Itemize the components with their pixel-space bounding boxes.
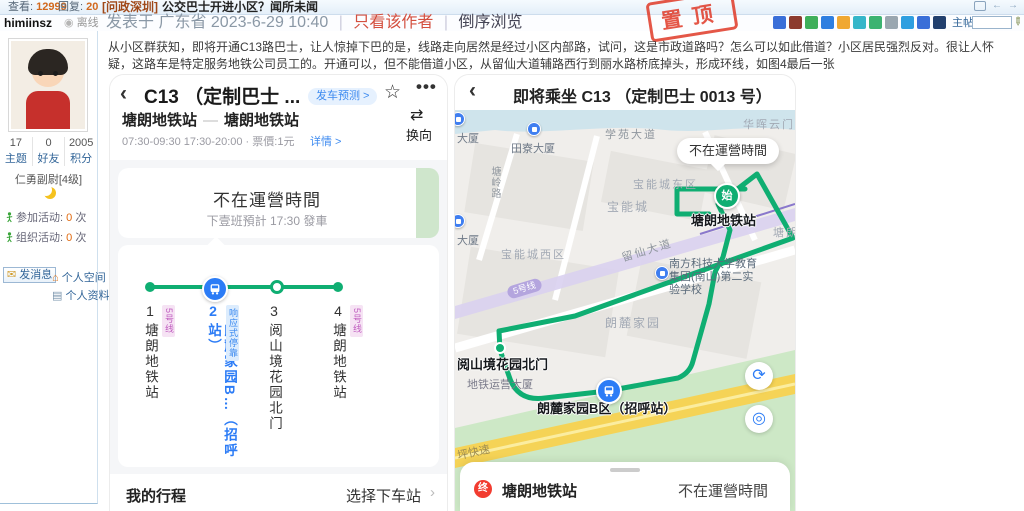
prev-thread-icon[interactable]: ← [992, 1, 1002, 11]
share-icon-friend[interactable] [917, 16, 930, 29]
end-marker: 终 [474, 480, 492, 498]
bus-glyph [208, 282, 222, 296]
stop-marker-terminal-1[interactable] [145, 282, 155, 292]
map-stop-label: 阅山境花园北门 [457, 354, 548, 373]
favorite-star-icon[interactable]: ☆ [384, 81, 401, 104]
post-body-text: 从小区群获知，即将开通C13路巴士，让人惊掉下巴的是，线路走向居然是经过小区内部… [108, 39, 1013, 73]
author-username[interactable]: himiinsz [4, 15, 52, 31]
activity-organize-label: 组织活动: [16, 232, 63, 244]
map-label-road: 学苑大道 [605, 126, 657, 142]
status-subtitle: 下壹班預計 17:30 發車 [118, 212, 416, 229]
runner-icon [5, 232, 14, 243]
swap-direction-icon[interactable]: ⇄ [410, 105, 423, 125]
pinned-stamp: 置顶 [645, 0, 738, 43]
refresh-button[interactable]: ⟳ [745, 362, 773, 390]
destination-station: 塘朗地铁站 [224, 112, 299, 129]
map-label-area: 宝能城东区 [633, 176, 698, 192]
metro-line5-badge: 5号线 [162, 305, 175, 337]
share-icon-renren[interactable] [933, 16, 946, 29]
stops-panel: 1 2 3 4 塘朗地铁站 朗麓家园B…（招呼站） 阅山境花园北门 塘朗地铁站 … [118, 245, 439, 467]
route-map[interactable]: 华晖云门 学苑大道 田寮大厦 塘岭路 宝能城东区 宝能城 宝能城西区 留仙大道 … [455, 110, 795, 511]
map-label: 华晖云门 [743, 116, 795, 132]
status-title: 不在運營時間 [118, 186, 416, 211]
start-marker[interactable]: 始 [714, 183, 740, 209]
runner-icon [5, 212, 14, 223]
avatar-eye [38, 71, 43, 76]
service-times: 07:30-09:30 17:30-20:00 · 票價:1元 [122, 133, 294, 149]
route-title: C13 （定制巴士 ... [144, 82, 300, 109]
metro-line5-badge: 5号线 [350, 305, 363, 337]
share-icon-douban[interactable] [869, 16, 882, 29]
chevron-right-icon: › [430, 484, 435, 501]
share-icon-qq[interactable] [821, 16, 834, 29]
departure-forecast-badge[interactable]: 发车预测 > [308, 88, 377, 105]
avatar-image [11, 41, 85, 129]
map-app-title: 即将乘坐 C13 （定制巴士 0013 号） [513, 83, 772, 107]
avatar[interactable] [8, 38, 88, 132]
operating-status-card: 不在運營時間 下壹班預計 17:30 發車 [118, 168, 416, 238]
more-options-icon[interactable]: ••• [416, 77, 437, 97]
stop-name[interactable]: 塘朗地铁站 [330, 323, 346, 401]
detail-link[interactable]: 详情 > [310, 133, 341, 149]
screenshot-bus-map-app: ‹ 即将乘坐 C13 （定制巴士 0013 号） [455, 75, 795, 511]
activity-organize: 组织活动: 0 次 [5, 229, 86, 245]
origin-station: 塘朗地铁站 [122, 112, 197, 129]
map-label-poi: 地铁运营大厦 [467, 376, 533, 392]
next-thread-icon[interactable]: → [1008, 1, 1018, 11]
moon-status-icon [44, 187, 56, 199]
meta-divider: | [339, 14, 343, 31]
views-caption: 查看: [8, 1, 33, 13]
stat-threads[interactable]: 17主题 [0, 137, 33, 166]
share-icon-tencent-weibo[interactable] [773, 16, 786, 29]
thread-title-text: 公交巴士开进小区？闻所未闻 [162, 0, 318, 14]
sheet-station-name: 塘朗地铁站 [502, 480, 577, 501]
author-rank: 仁勇副尉[4级] [0, 171, 97, 187]
share-icons-row [773, 16, 946, 29]
stop-number: 1 [140, 303, 160, 319]
map-label-road: 塘岭路 [487, 166, 502, 199]
bus-position-icon[interactable] [202, 276, 228, 302]
locate-button[interactable]: ◎ [745, 405, 773, 433]
meta-divider: | [444, 14, 448, 31]
thread-category-tag[interactable]: [问政深圳] [102, 0, 158, 14]
posted-time: 发表于 广东省 2023-6-29 10:40 [106, 14, 328, 31]
route-endpoints: 塘朗地铁站—塘朗地铁站 [122, 109, 299, 130]
drag-handle[interactable] [610, 468, 640, 472]
profile-card-icon: ▤ [52, 290, 62, 302]
route-line [150, 285, 338, 289]
thread-title: [问政深圳]公交巴士开进小区？闻所未闻 [102, 0, 318, 15]
activity-join-unit: 次 [75, 212, 86, 224]
stop-marker-terminal-4[interactable] [333, 282, 343, 292]
share-icon-weibo2[interactable] [901, 16, 914, 29]
main-post-label: 主帖 [952, 15, 974, 31]
personal-space-link[interactable]: ⌂ 个人空间 [52, 269, 106, 285]
post-meta: 发表于 广东省 2023-6-29 10:40 | 只看该作者 | 倒序浏览 [106, 15, 522, 31]
map-label-area: 塘朗 [773, 224, 795, 240]
share-icon-qzone[interactable] [837, 16, 850, 29]
activity-join-label: 参加活动: [16, 212, 63, 224]
back-icon[interactable]: ‹ [469, 80, 476, 102]
share-icon-tieba[interactable] [853, 16, 866, 29]
sheet-status: 不在運營時間 [678, 480, 768, 501]
avatar-eye [53, 71, 58, 76]
forum-thread-page: 查看: 12999 回复: 20 [问政深圳]公交巴士开进小区？闻所未闻 ← →… [0, 0, 1024, 511]
offline-label: 离线 [77, 17, 99, 29]
offline-icon: ◉ [64, 17, 74, 29]
envelope-icon: ✉ [7, 269, 16, 281]
route-dash: — [203, 112, 218, 129]
bottom-sheet: 终 塘朗地铁站 不在運營時間 [460, 462, 790, 511]
map-label-poi: 田寮大厦 [511, 140, 555, 156]
stop-marker-3[interactable] [270, 280, 284, 294]
school-pin-icon[interactable] [655, 266, 669, 280]
trip-footer-bar: 我的行程 选择下车站 › [110, 474, 447, 511]
map-label-area: 宝能城西区 [501, 246, 566, 262]
bus-glyph [602, 384, 616, 398]
home-icon: ⌂ [52, 272, 59, 284]
stop-number: 4 [328, 303, 348, 319]
profile-link[interactable]: ▤ 个人资料 [52, 287, 109, 303]
author-sidebar: 17主题 0好友 2005积分 仁勇副尉[4级] 参加活动: 0 次 组织活动:… [0, 31, 98, 504]
map-label-area: 朗麓家园 [605, 314, 661, 331]
reverse-browse-link[interactable]: 倒序浏览 [458, 14, 522, 31]
on-demand-stop-badge: 响应式停靠 [226, 305, 239, 361]
replies-label: 回复: 20 [58, 0, 98, 14]
map-label-school: 南方科技大学教育集团(南山)第二实验学校 [669, 258, 761, 297]
share-icon-wechat[interactable] [805, 16, 818, 29]
map-label-area: 宝能城 [607, 198, 649, 215]
activity-join-count: 0 [66, 212, 72, 224]
stat-points[interactable]: 2005积分 [65, 137, 97, 166]
stop-number: 2 [203, 303, 223, 319]
stop-name[interactable]: 阅山境花园北门 [266, 323, 282, 432]
status-bubble: 不在運營時間 [677, 138, 779, 164]
share-icon-sina[interactable] [789, 16, 802, 29]
activity-organize-unit: 次 [75, 232, 86, 244]
map-label-poi: 大厦 [457, 130, 479, 146]
map-label-poi: 大厦 [457, 232, 479, 248]
back-icon[interactable]: ‹ [120, 83, 127, 105]
my-trip-label: 我的行程 [126, 485, 186, 506]
map-canvas [455, 110, 795, 511]
building-pin-icon[interactable] [527, 122, 541, 136]
share-icon-evernote[interactable] [885, 16, 898, 29]
send-message-button[interactable]: ✉ 发消息 [3, 267, 56, 283]
stat-friends[interactable]: 0好友 [33, 137, 66, 166]
only-author-link[interactable]: 只看该作者 [353, 14, 433, 31]
page-tools: ← → [974, 1, 1018, 11]
bus-stop-icon[interactable] [596, 378, 622, 404]
choose-alight-stop-button[interactable]: 选择下车站 [346, 485, 421, 506]
stop-number: 3 [264, 303, 284, 319]
swap-direction-label[interactable]: 换向 [406, 125, 432, 144]
activity-organize-count: 0 [66, 232, 72, 244]
screenshot-bus-route-app: ‹ C13 （定制巴士 ... 发车预测 > ☆ ••• 塘朗地铁站—塘朗地铁站… [110, 75, 447, 511]
author-status: ◉ 离线 [64, 15, 99, 31]
replies-count: 20 [86, 1, 98, 13]
map-stop-label: 塘朗地铁站 [691, 210, 756, 229]
avatar-hair [28, 49, 68, 75]
print-icon[interactable] [974, 1, 986, 11]
replies-caption: 回复: [58, 1, 83, 13]
avatar-shirt [26, 91, 70, 129]
quick-jump-input[interactable] [972, 16, 1012, 29]
activity-join: 参加活动: 0 次 [5, 209, 86, 225]
stop-name[interactable]: 塘朗地铁站 [142, 323, 158, 401]
author-stats: 17主题 0好友 2005积分 [0, 137, 97, 166]
